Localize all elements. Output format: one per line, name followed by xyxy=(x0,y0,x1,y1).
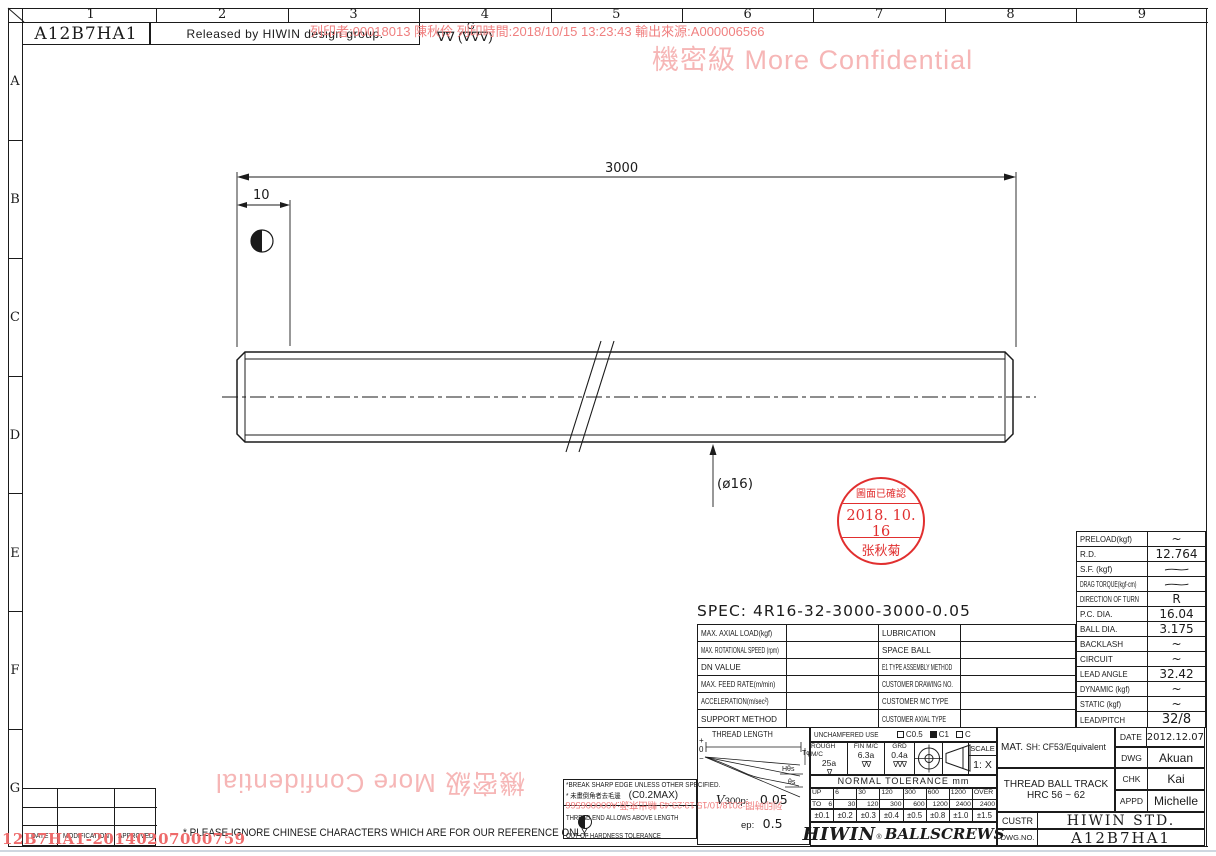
spec-label: CUSTOMER MC TYPE xyxy=(879,693,961,710)
ruler-tick xyxy=(8,611,22,612)
col-label-3: 3 xyxy=(288,8,419,22)
tolerance-value: ±0.8 xyxy=(927,810,950,821)
spec-label: ACCELERATION(m/sec²) xyxy=(698,693,787,710)
col-label-7: 7 xyxy=(813,8,944,22)
ep-label: ep: xyxy=(741,820,754,831)
col-label-6: 6 xyxy=(682,8,813,22)
param-label: BALL DIA. xyxy=(1077,622,1148,637)
tolerance-value: ±1.5 xyxy=(973,810,996,821)
spec-label: MAX. FEED RATE(m/min) xyxy=(698,676,787,693)
checkbox-empty-icon xyxy=(956,731,963,738)
param-label: R.D. xyxy=(1077,547,1148,562)
dwgno-value: A12B7HA1 xyxy=(1038,830,1204,845)
tolerance-range-cell: 30120 xyxy=(857,789,880,808)
checkbox-filled-icon xyxy=(930,731,937,738)
shaft-chamfer-edges xyxy=(245,352,1005,442)
row-label-E: E xyxy=(8,546,22,561)
arrowhead xyxy=(710,444,717,455)
frame-right-line xyxy=(1206,8,1207,847)
appd-value: Michelle xyxy=(1148,791,1204,811)
param-value: ~ xyxy=(1148,652,1205,667)
ruler-tick xyxy=(419,8,420,22)
spec-label: E1 TYPE ASSEMBLY METHOD xyxy=(879,659,961,676)
thread-length-title: THREAD LENGTH xyxy=(712,730,780,739)
footer-code: 12B7HA1-20140207000759 xyxy=(2,830,246,848)
ruler-tick xyxy=(8,493,22,494)
dwgno-label: DWG.NO. xyxy=(998,830,1038,845)
param-value: ~ xyxy=(1148,697,1205,712)
col-label-5: 5 xyxy=(551,8,682,22)
spec-value-cell xyxy=(961,625,1075,642)
param-label: DIRECTION OF TURN xyxy=(1077,592,1148,607)
thread-zero: 0 xyxy=(699,745,703,754)
col-label-8: 8 xyxy=(945,8,1076,22)
hiwin-logo-box: HIWIN ® BALLSCREWS xyxy=(810,822,997,846)
stamp-name: 张秋菊 xyxy=(839,540,923,559)
projection-cone-cell xyxy=(943,743,969,774)
thread-s-label: θs xyxy=(788,779,795,786)
param-value: 32/8 xyxy=(1148,712,1205,727)
param-value: ∼ xyxy=(1148,577,1205,592)
ep-row: ep: 0.5 xyxy=(741,815,783,833)
chk-value: Kai xyxy=(1148,769,1204,789)
spec-value-cell xyxy=(787,693,879,710)
ruler-tick xyxy=(1076,8,1077,22)
ruler-tick xyxy=(8,258,22,259)
param-value: ~ xyxy=(1148,682,1205,697)
tolerance-range-cell: 120300 xyxy=(880,789,903,808)
row-label-C: C xyxy=(8,310,22,325)
tolerance-value: ±0.2 xyxy=(834,810,857,821)
revision-cell xyxy=(23,789,58,808)
dim-overall-text: 3000 xyxy=(605,161,638,176)
note-line-1: *BREAK SHARP EDGE UNLESS OTHER SPECIFIED… xyxy=(566,781,694,790)
param-value: ~ xyxy=(1148,637,1205,652)
param-label: STATIC (kgf) xyxy=(1077,697,1148,712)
drawing-sheet: 機密級 More Confidential 機密級 More Confident… xyxy=(0,0,1216,856)
tolerance-value: ±0.4 xyxy=(880,810,903,821)
tolerance-range-cell: 300600 xyxy=(904,789,927,808)
print-info-top: 列印者:00018013 陳秋伶 列印時間:2018/10/15 13:23:4… xyxy=(310,21,765,40)
spec-value-cell xyxy=(961,642,1075,659)
spec-label: MAX. ROTATIONAL SPEED (rpm) xyxy=(698,642,787,659)
ballscrews-logo: BALLSCREWS xyxy=(885,825,1005,843)
ruler-tick xyxy=(682,8,683,22)
spec-title: SPEC: 4R16-32-3000-3000-0.05 xyxy=(697,602,971,620)
dwg-row: DWG Akuan xyxy=(1115,747,1205,768)
spec-value-cell xyxy=(787,642,879,659)
stamp-divider xyxy=(839,503,923,504)
dia-text: (ø16) xyxy=(717,476,753,492)
spec-value-cell xyxy=(787,676,879,693)
param-value: R xyxy=(1148,592,1205,607)
param-label: PRELOAD(kgf) xyxy=(1077,532,1148,547)
ruler-tick xyxy=(288,8,289,22)
param-value: 3.175 xyxy=(1148,622,1205,637)
shaft-outline xyxy=(237,352,1013,442)
ruler-tick xyxy=(156,8,157,22)
unchamfered-row: UNCHAMFERED USE C0.5 C1 C xyxy=(810,727,997,742)
spec-value-cell xyxy=(787,625,879,642)
tolerance-values: ±0.1 ±0.2 ±0.3 ±0.4 ±0.5 ±0.8 ±1.0 ±1.5 xyxy=(810,809,997,822)
param-value: ∼ xyxy=(1148,562,1205,577)
param-value: 32.42 xyxy=(1148,667,1205,682)
param-label: S.F. (kgf) xyxy=(1077,562,1148,577)
confidential-watermark-bottom: 機密級 More Confidential xyxy=(175,766,565,803)
dwgno-row: DWG.NO. A12B7HA1 xyxy=(997,829,1205,846)
projection-target-cell xyxy=(915,743,943,774)
tolerance-header: UP TO 6 630 30120 120300 300600 6001200 … xyxy=(810,788,997,809)
appd-label: APPD xyxy=(1116,791,1148,811)
scan-edge-line xyxy=(0,850,1216,852)
tolerance-value: ±0.1 xyxy=(811,810,834,821)
ruler-tick xyxy=(8,729,22,730)
unchamfered-label: UNCHAMFERED USE xyxy=(814,730,878,739)
date-value: 2012.12.07 xyxy=(1147,728,1204,746)
spec-value-cell xyxy=(961,710,1075,727)
spec-table: MAX. AXIAL LOAD(kgf) LUBRICATION MAX. RO… xyxy=(697,624,1076,728)
doc-number: A12B7HA1 xyxy=(34,24,137,44)
ruler-tick xyxy=(8,376,22,377)
dwg-value: Akuan xyxy=(1148,748,1204,767)
scale-value: 1: X xyxy=(969,756,996,774)
spec-label: DN VALUE xyxy=(698,659,787,676)
fin-mc-cell: FIN M/C 6.3a ∇∇ xyxy=(848,743,885,774)
extension-lines xyxy=(237,172,1016,347)
dim-end-text: 10 xyxy=(253,188,270,203)
arrowhead xyxy=(237,174,249,181)
tolerance-value: ±1.0 xyxy=(950,810,973,821)
arrowhead xyxy=(1004,174,1016,181)
row-label-F: F xyxy=(8,663,22,678)
thread-plus: + xyxy=(699,736,704,745)
datum-symbol-fill xyxy=(251,230,262,252)
custr-label: CUSTR xyxy=(998,813,1038,828)
col-label-2: 2 xyxy=(156,8,287,22)
revision-cell xyxy=(58,789,115,808)
param-value: 16.04 xyxy=(1148,607,1205,622)
spec-label: SUPPORT METHOD xyxy=(698,710,787,727)
mat-value: SH: CF53/Equivalent xyxy=(1026,742,1106,753)
thread-track-line2: HRC 56 ~ 62 xyxy=(1027,790,1085,801)
param-value: 12.764 xyxy=(1148,547,1205,562)
spec-value-cell xyxy=(961,676,1075,693)
param-label: LEAD ANGLE xyxy=(1077,667,1148,682)
param-label: DRAG TORQUE(kgf-cm) xyxy=(1077,577,1148,592)
spec-value-cell xyxy=(961,659,1075,676)
row-label-B: B xyxy=(8,192,22,207)
chk-label: CHK xyxy=(1116,769,1148,789)
stamp-confirm-text: 圖面已確認 xyxy=(839,485,923,500)
row-label-G: G xyxy=(8,781,22,796)
thread-track-box: THREAD BALL TRACK HRC 56 ~ 62 xyxy=(997,768,1115,812)
hiwin-logo: HIWIN xyxy=(803,824,876,845)
c1-label: C1 xyxy=(939,730,949,739)
revision-cell xyxy=(58,808,115,827)
datum-symbol xyxy=(251,230,273,252)
note-line-3: THREAD END ALLOWS ABOVE LENGTH xyxy=(566,814,678,823)
param-label: CIRCUIT xyxy=(1077,652,1148,667)
ruler-tick xyxy=(945,8,946,22)
ruler-tick xyxy=(8,140,22,141)
arrowhead xyxy=(237,202,247,208)
param-label: LEAD/PITCH xyxy=(1077,712,1148,727)
date-row: DATE 2012.12.07 xyxy=(1115,727,1205,747)
revision-cell xyxy=(115,808,157,827)
arrowhead xyxy=(280,202,290,208)
spec-label: CUSTOMER AXIAL TYPE xyxy=(879,710,961,727)
ep-value: 0.5 xyxy=(763,816,783,831)
shaft-root-lines xyxy=(245,359,1005,435)
thread-t-label: Tφ xyxy=(802,750,811,757)
tolerance-range-cell: 630 xyxy=(834,789,857,808)
scale-label: SCALE xyxy=(969,743,996,756)
param-value: ~ xyxy=(1148,532,1205,547)
spec-label: SPACE BALL xyxy=(879,642,961,659)
spec-label: CUSTOMER DRAWING NO. xyxy=(879,676,961,693)
ruler-tick xyxy=(551,8,552,22)
row-label-D: D xyxy=(8,428,22,443)
param-label: BACKLASH xyxy=(1077,637,1148,652)
confidential-watermark-top: 機密級 More Confidential xyxy=(652,38,973,77)
param-label: DYNAMIC (kgf) xyxy=(1077,682,1148,697)
thread-track-line1: THREAD BALL TRACK xyxy=(1004,779,1108,790)
tolerance-range-cell: 6001200 xyxy=(927,789,950,808)
spec-label: MAX. AXIAL LOAD(kgf) xyxy=(698,625,787,642)
tolerance-range-cell: UP TO 6 xyxy=(811,789,834,808)
custr-value: HIWIN STD. xyxy=(1038,813,1204,828)
col-label-4: 4 xyxy=(419,8,550,22)
tolerance-title: NORMAL TOLERANCE mm xyxy=(810,775,997,788)
spec-value-cell xyxy=(787,659,879,676)
parameters-table: PRELOAD(kgf) ~ R.D. 12.764 S.F. (kgf) ∼ … xyxy=(1076,531,1206,728)
date-label: DATE xyxy=(1116,728,1147,746)
tolerance-range-cell: OVER2400 xyxy=(973,789,996,808)
grd-cell: GRD 0.4a ∇∇∇ xyxy=(885,743,915,774)
doc-number-box: A12B7HA1 xyxy=(22,22,150,45)
c05-label: C0.5 xyxy=(906,730,923,739)
row-label-A: A xyxy=(8,74,22,89)
col-label-9: 9 xyxy=(1076,8,1207,22)
mat-label: MAT. xyxy=(1001,742,1023,753)
frame-ruler-left-line xyxy=(22,8,23,847)
scale-cell: SCALE 1: X xyxy=(969,743,996,774)
param-label: P.C. DIA. xyxy=(1077,607,1148,622)
thread-h-label: Hθs xyxy=(782,766,794,773)
revision-cell xyxy=(115,789,157,808)
c-label: C xyxy=(965,730,971,739)
break-lines xyxy=(566,341,614,452)
tolerance-range-cell: 12002400 xyxy=(950,789,973,808)
appd-row: APPD Michelle xyxy=(1115,790,1205,812)
chk-row: CHK Kai xyxy=(1115,768,1205,790)
material-box: MAT. SH: CF53/Equivalent xyxy=(997,727,1115,768)
checkbox-empty-icon xyxy=(897,731,904,738)
dwg-label: DWG xyxy=(1116,748,1148,767)
col-label-1: 1 xyxy=(25,8,156,22)
spec-value-cell xyxy=(787,710,879,727)
registered-mark-icon: ® xyxy=(877,834,882,841)
spec-label: LUBRICATION xyxy=(879,625,961,642)
ignore-note: * PLEASE IGNORE CHINESE CHARACTERS WHICH… xyxy=(183,827,634,839)
rough-mc-cell: ROUGH M/C 25a ∇ xyxy=(811,743,848,774)
machining-symbols-row: ROUGH M/C 25a ∇ FIN M/C 6.3a ∇∇ GRD 0.4a… xyxy=(810,742,997,775)
custr-row: CUSTR HIWIN STD. xyxy=(997,812,1205,829)
tolerance-value: ±0.5 xyxy=(904,810,927,821)
revision-cell xyxy=(23,808,58,827)
ruler-tick xyxy=(813,8,814,22)
print-info-bottom: 列印時間:2018/10/15 13:23:43 輸出來源:A000006566 xyxy=(540,799,808,813)
thread-minus: − xyxy=(699,754,704,763)
spec-value-cell xyxy=(961,693,1075,710)
stamp-date: 2018. 10. 16 xyxy=(839,508,923,540)
approval-stamp: 圖面已確認 2018. 10. 16 张秋菊 xyxy=(837,477,925,565)
tolerance-value: ±0.3 xyxy=(857,810,880,821)
